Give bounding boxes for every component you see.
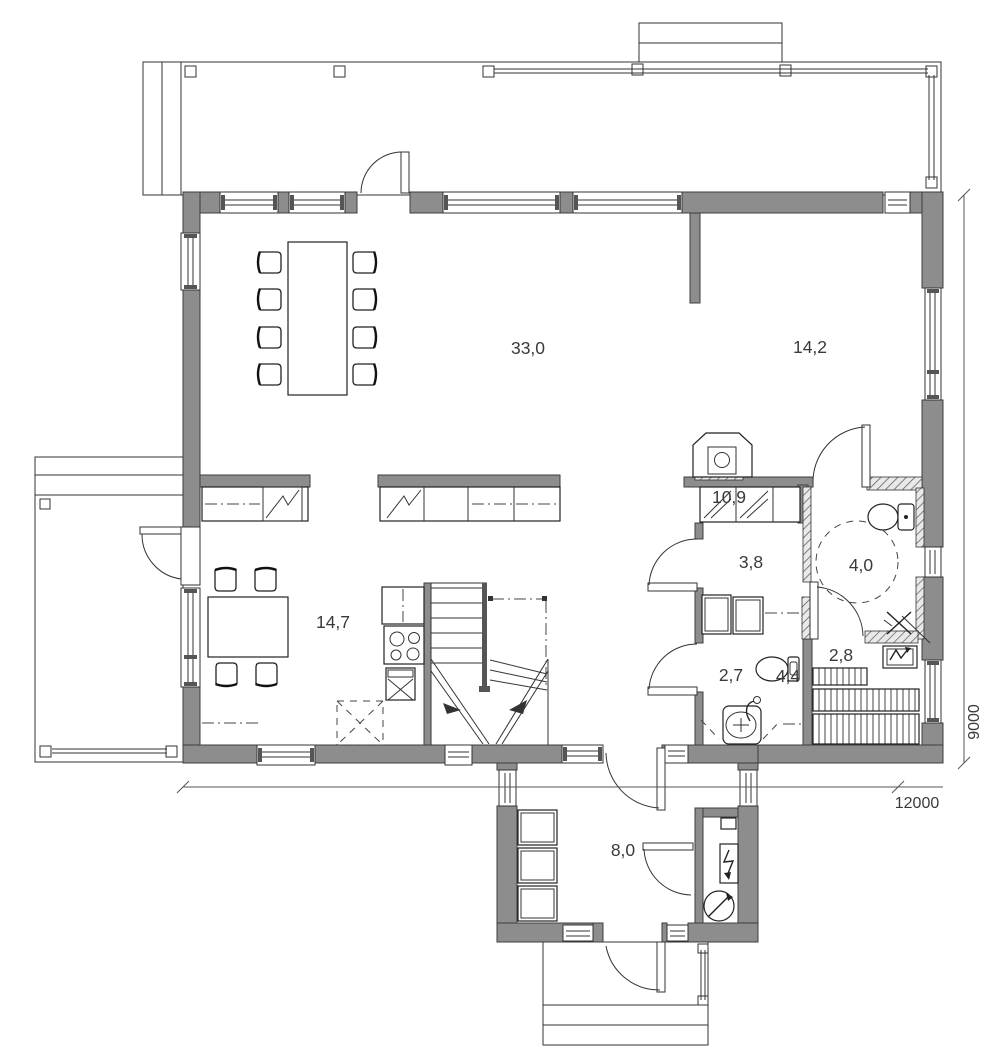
entrance-porch (543, 942, 708, 1045)
tech-closet-wall (695, 808, 703, 923)
terrace-side-railing (926, 66, 937, 188)
chair (255, 568, 277, 591)
room-label-wc: 2,7 (719, 665, 743, 685)
kitchen-wall-right (378, 475, 560, 487)
room-label-bathroom: 4,0 (849, 555, 874, 575)
room-label-sauna: 2,8 (829, 645, 853, 665)
window (289, 192, 345, 213)
chair (256, 663, 278, 686)
room-label-kitchen: 14,7 (316, 612, 350, 632)
window (925, 288, 941, 400)
kitchen-counters (202, 487, 560, 521)
stairs (431, 583, 548, 745)
door-front (606, 942, 665, 992)
door-wc (648, 644, 697, 695)
terrace-post (780, 65, 791, 76)
washbasin (723, 697, 761, 745)
window (925, 660, 941, 723)
sauna-bench (813, 668, 867, 685)
door-closet (648, 539, 697, 591)
chair (258, 289, 281, 311)
terrace-railing (40, 746, 177, 757)
window (573, 192, 682, 213)
dishwasher (386, 668, 415, 700)
room-label-entrance: 8,0 (611, 840, 636, 860)
dining-table-living (258, 242, 376, 395)
partition-stub (690, 213, 700, 303)
window (562, 745, 603, 763)
island-outline (337, 701, 383, 745)
stove (384, 626, 424, 664)
room-label-bedroom: 14,2 (793, 337, 827, 357)
top-terrace (143, 23, 941, 195)
tech-box (721, 818, 736, 829)
window (667, 925, 688, 941)
dimension-width: 12000 (895, 795, 940, 812)
sauna-heater (883, 646, 917, 668)
sauna-bench (813, 689, 919, 711)
stair-arrow (509, 700, 527, 714)
window (181, 588, 200, 687)
terrace-post (185, 66, 196, 77)
room-label-living: 33,0 (511, 338, 545, 358)
toilet (868, 504, 914, 530)
vestibule-interior (518, 810, 738, 921)
entry-closet (518, 810, 557, 921)
chair (258, 364, 281, 386)
window (885, 192, 910, 213)
chair (216, 663, 238, 686)
window (740, 770, 757, 806)
lower-closets (702, 595, 801, 634)
window (257, 745, 315, 765)
window (220, 192, 278, 213)
window (665, 745, 688, 763)
window (181, 233, 200, 290)
terrace-steps (639, 23, 782, 62)
porch-railing (698, 944, 708, 1005)
door-bathroom (810, 582, 863, 639)
room-label-hall: 10,9 (712, 487, 746, 507)
door-terrace-top (361, 152, 409, 193)
sauna-bench (813, 714, 919, 744)
sauna-wall (803, 639, 812, 745)
room-label-washroom: 4,4 (776, 666, 801, 686)
chair (353, 327, 376, 349)
stair-wall (424, 583, 431, 745)
chair (258, 252, 281, 274)
chair (353, 289, 376, 311)
chair (353, 364, 376, 386)
door-entrance-inner (606, 748, 665, 810)
door-tech-closet (643, 843, 693, 895)
chair (258, 327, 281, 349)
fireplace (693, 433, 752, 477)
room-label-closet: 3,8 (739, 552, 763, 572)
electrical-panel (720, 844, 738, 883)
kitchen-dining-set (208, 568, 288, 686)
terrace-post (334, 66, 345, 77)
window (563, 925, 593, 941)
terrace-post (40, 499, 50, 509)
kitchen-wall-left (200, 475, 310, 487)
dimension-height: 9000 (966, 704, 983, 740)
floor-plan-page: 33,0 14,2 14,7 10,9 3,8 4,0 2,7 4,4 2,8 … (0, 0, 1000, 1063)
door-bedroom (813, 425, 870, 487)
chair (353, 252, 376, 274)
ventilation-unit (704, 891, 734, 921)
window (925, 547, 941, 577)
chair (215, 568, 237, 591)
floor-plan-drawing: 33,0 14,2 14,7 10,9 3,8 4,0 2,7 4,4 2,8 … (0, 0, 1000, 1063)
terrace-post (483, 66, 494, 77)
door-terrace-left (140, 527, 200, 585)
stair-stringer (482, 583, 487, 691)
window (445, 745, 472, 765)
window (499, 770, 516, 806)
window (443, 192, 560, 213)
left-terrace (35, 457, 183, 762)
